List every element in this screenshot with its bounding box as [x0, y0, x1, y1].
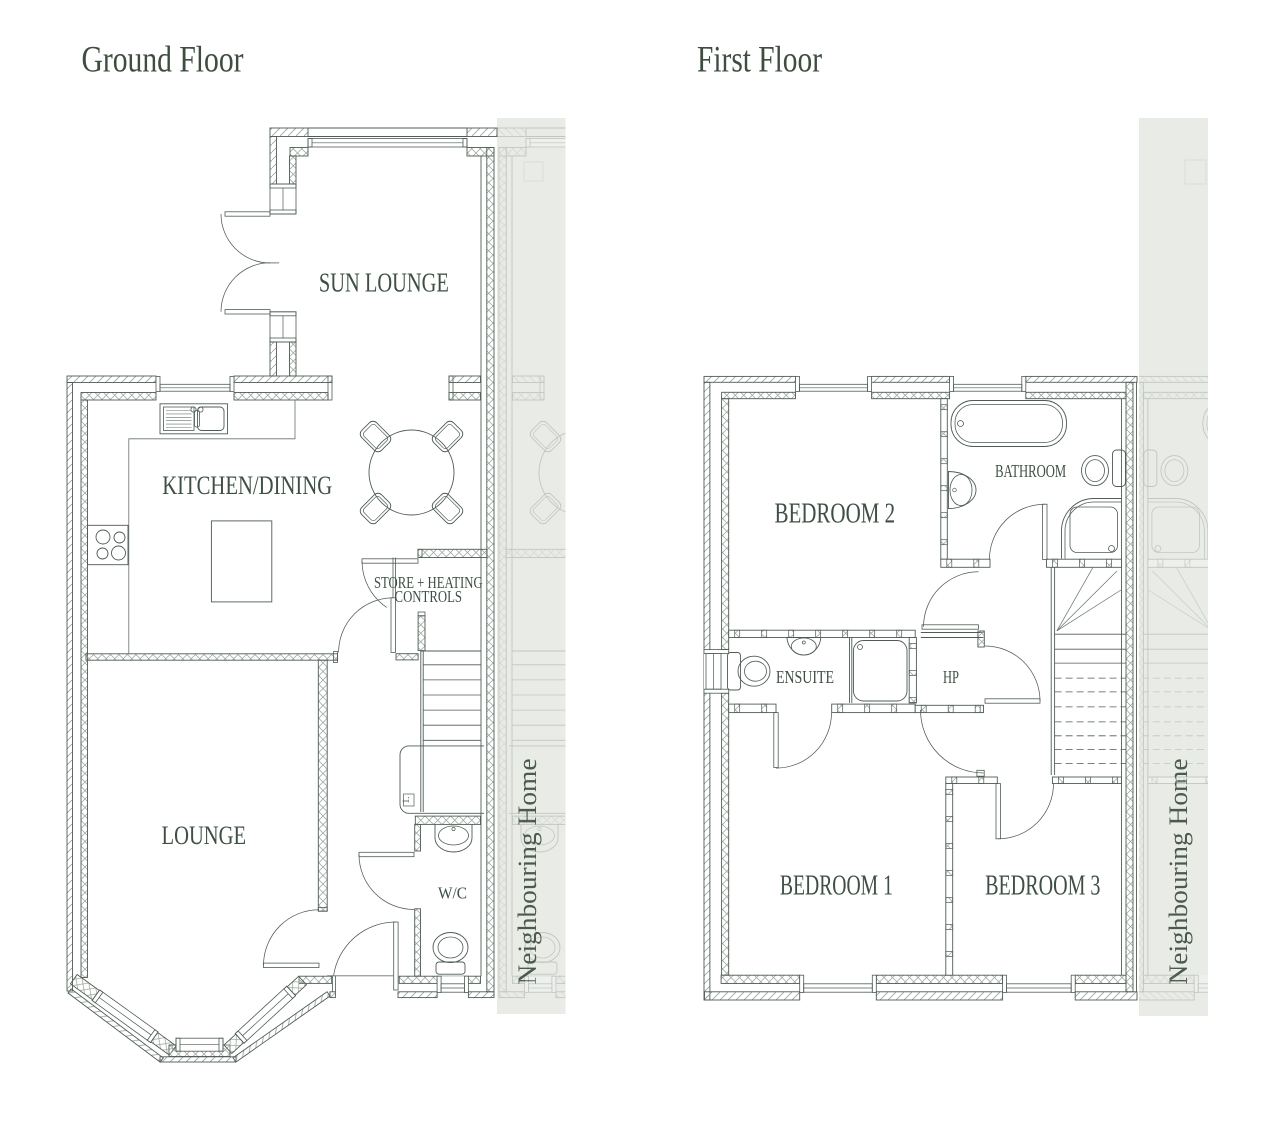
svg-text:First Floor: First Floor — [697, 39, 822, 80]
svg-text:BEDROOM 2: BEDROOM 2 — [774, 499, 895, 530]
svg-text:ENSUITE: ENSUITE — [776, 667, 834, 687]
svg-text:KITCHEN/DINING: KITCHEN/DINING — [162, 470, 332, 500]
svg-text:HP: HP — [943, 667, 959, 687]
svg-text:LOUNGE: LOUNGE — [162, 820, 247, 850]
svg-text:Neighbouring Home: Neighbouring Home — [1164, 759, 1193, 985]
svg-text:Ground Floor: Ground Floor — [82, 39, 244, 80]
svg-text:BATHROOM: BATHROOM — [995, 461, 1066, 481]
svg-text:CONTROLS: CONTROLS — [395, 587, 463, 606]
svg-text:1.: 1. — [401, 797, 411, 804]
svg-text:BEDROOM 3: BEDROOM 3 — [985, 870, 1100, 901]
svg-text:SUN LOUNGE: SUN LOUNGE — [319, 268, 449, 298]
svg-text:Neighbouring Home: Neighbouring Home — [513, 759, 542, 985]
svg-text:BEDROOM 1: BEDROOM 1 — [780, 870, 893, 901]
svg-text:W/C: W/C — [438, 884, 467, 903]
